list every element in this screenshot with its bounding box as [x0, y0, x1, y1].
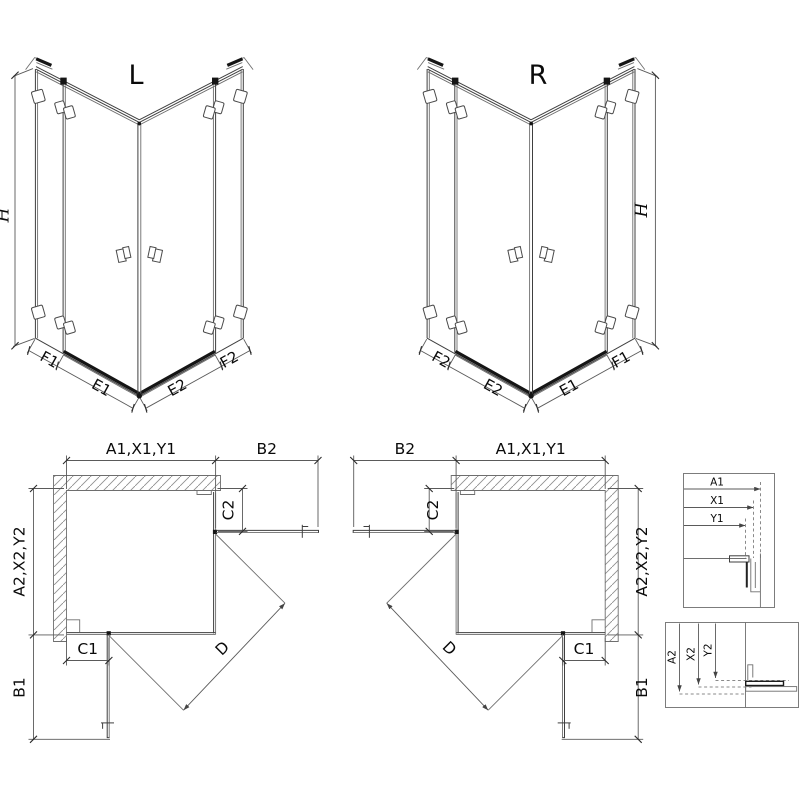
iso-right-title: R — [529, 60, 548, 91]
dim-label-a2x2y2-left: A2,X2,Y2 — [11, 526, 29, 596]
shower-enclosure-diagram: L H F1 E1 E2 F2 R H F2 E2 E1 F1 A1,X1,Y1… — [0, 0, 800, 800]
dim-label-b2-right: B2 — [395, 440, 416, 458]
technical-drawing-page: L H F1 E1 E2 F2 R H F2 E2 E1 F1 A1,X1,Y1… — [0, 0, 800, 800]
plan-right-geometry — [350, 456, 643, 743]
dim-label-y1-detail: Y1 — [709, 513, 723, 525]
dim-label-x2-detail: X2 — [686, 647, 698, 661]
iso-left-title: L — [128, 60, 143, 91]
dim-label-a1-detail: A1 — [710, 477, 724, 489]
dim-label-a1x1y1-left: A1,X1,Y1 — [106, 440, 176, 458]
dim-label-height-left: H — [0, 206, 14, 223]
iso-view-right: R H F2 E2 E1 F1 — [417, 58, 659, 413]
wall-hatch-right-plan — [451, 476, 618, 642]
detail-box-width-profile: A1 X1 Y1 — [684, 474, 775, 608]
dim-label-height-right: H — [632, 201, 652, 218]
iso-view-left: L H F1 E1 E2 F2 — [0, 58, 253, 413]
dim-label-a1x1y1-right: A1,X1,Y1 — [496, 440, 566, 458]
dim-label-a2-detail: A2 — [667, 650, 679, 664]
dim-label-b1-right: B1 — [633, 677, 651, 698]
dim-label-c2-left: C2 — [220, 500, 238, 521]
dim-label-b2-left: B2 — [257, 440, 278, 458]
dim-label-x1-detail: X1 — [710, 495, 724, 507]
dim-label-a2x2y2-right: A2,X2,Y2 — [633, 526, 651, 596]
dim-label-d-left: D — [212, 638, 233, 659]
dim-label-c2-right: C2 — [424, 500, 442, 521]
dim-label-y2-detail: Y2 — [703, 643, 715, 657]
dim-label-b1-left: B1 — [11, 677, 29, 698]
detail-box-depth-profile: A2 X2 Y2 — [666, 623, 799, 708]
plan-left-geometry — [29, 456, 322, 743]
wall-hatch-left-plan — [54, 476, 221, 642]
dim-label-c1-left: C1 — [77, 640, 98, 658]
dim-label-c1-right: C1 — [574, 640, 595, 658]
dim-label-d-right: D — [439, 638, 460, 659]
